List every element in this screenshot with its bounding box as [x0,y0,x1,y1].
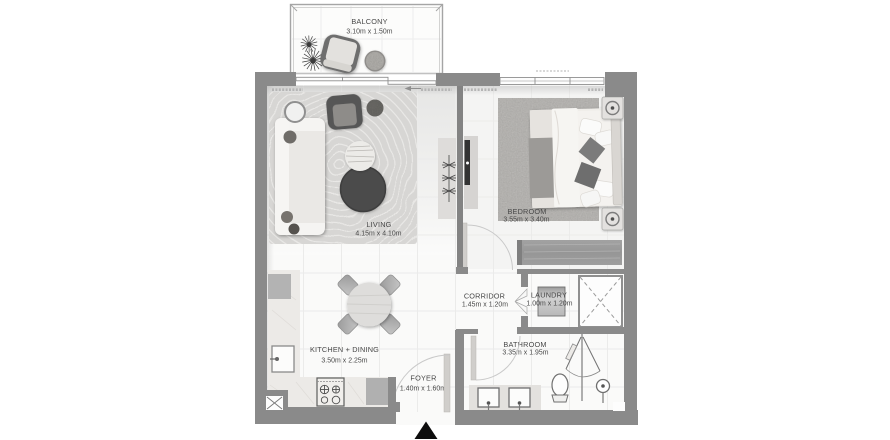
svg-text:1.40m x 1.60m: 1.40m x 1.60m [400,386,446,393]
svg-text:LIVING: LIVING [366,220,391,229]
svg-text:3.10m x 1.50m: 3.10m x 1.50m [346,29,392,36]
svg-text:BATHROOM: BATHROOM [503,340,546,349]
svg-text:BALCONY: BALCONY [351,17,387,26]
svg-text:1.00m x 1.20m: 1.00m x 1.20m [526,301,572,308]
svg-text:3.35m x 1.95m: 3.35m x 1.95m [502,350,548,357]
svg-text:BEDROOM: BEDROOM [507,207,546,216]
svg-text:1.45m x 1.20m: 1.45m x 1.20m [462,302,508,309]
svg-text:FOYER: FOYER [410,374,436,383]
svg-text:KITCHEN + DINING: KITCHEN + DINING [310,345,379,354]
svg-text:4.15m x 4.10m: 4.15m x 4.10m [355,231,401,238]
svg-text:CORRIDOR: CORRIDOR [464,292,505,301]
svg-text:3.50m x 2.25m: 3.50m x 2.25m [321,358,367,365]
svg-text:3.55m x 3.40m: 3.55m x 3.40m [503,217,549,224]
svg-text:LAUNDRY: LAUNDRY [531,291,567,300]
